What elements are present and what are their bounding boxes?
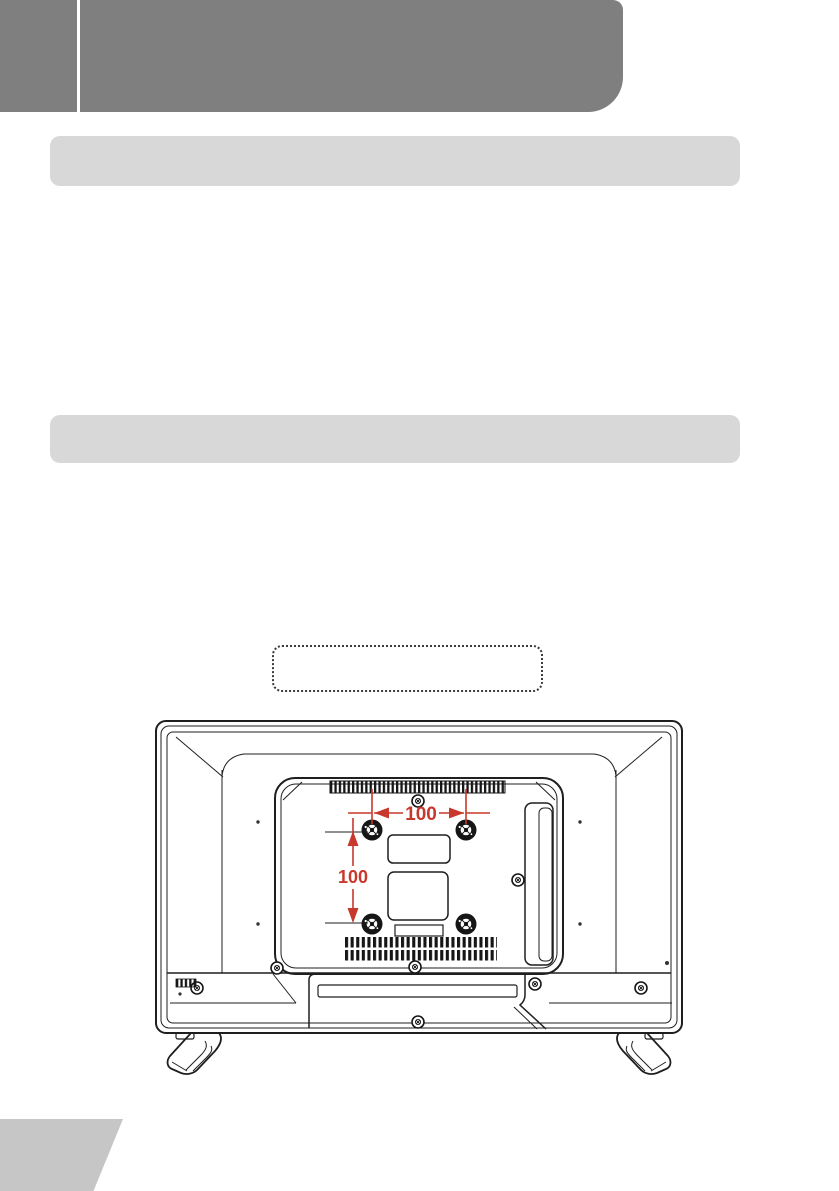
section-header-bar-1 [50,136,740,186]
lower-vent-row-1 [345,937,497,948]
label-sticker-large [388,872,448,920]
stand-legs [168,1033,671,1074]
lower-vent-row-2 [345,950,497,961]
stand-leg-left [168,1033,222,1074]
label-sticker-small [388,835,450,863]
vesa-screw-bottom-left [362,914,383,935]
vesa-dimension-annotations: 100 100 [325,789,490,923]
connector-slot-bar [318,985,517,997]
housing-screws [191,795,647,1028]
vesa-screw-bottom-right [456,914,477,935]
top-vent-grille [330,781,505,793]
footer-corner-shape [0,1119,123,1191]
tv-outer-shell [156,721,682,1033]
tv-rear-diagram: 100 100 [0,690,839,1090]
banner-divider-line [77,0,80,112]
power-connector [176,979,196,987]
header-banner [0,0,623,112]
rating-label-bar [395,925,443,936]
vesa-mount-screws [362,820,477,935]
section-header-bar-2 [50,415,740,463]
manual-page: 100 100 [0,0,839,1191]
dimension-label-horizontal: 100 [405,804,437,825]
model-note-box [272,645,543,692]
bottom-housing [170,974,672,1039]
dimension-label-vertical: 100 [338,867,368,887]
